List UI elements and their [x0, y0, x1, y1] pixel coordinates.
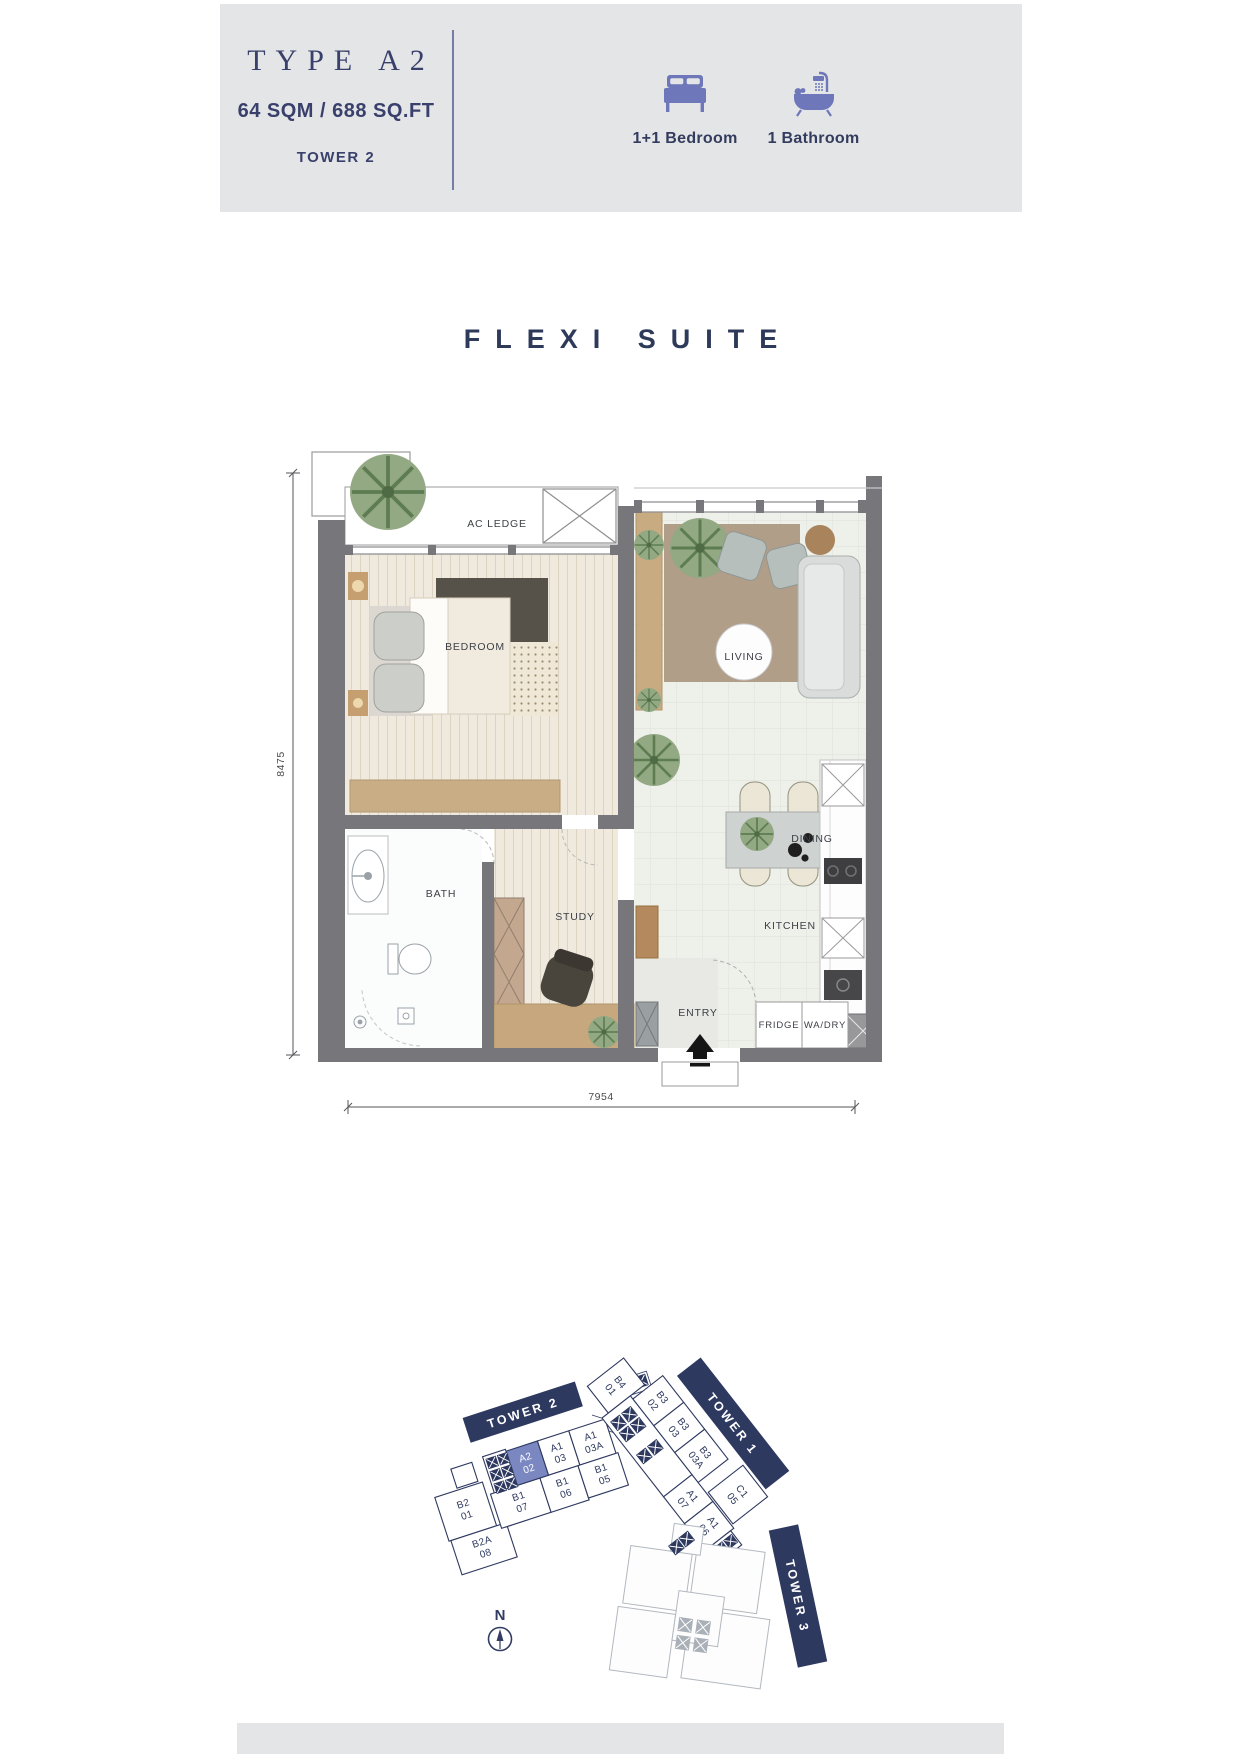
room-label-dining: DINING [791, 833, 833, 845]
footer-bar [237, 1723, 1004, 1754]
north-arrow-icon: N [489, 1607, 512, 1651]
dim-width: 7954 [588, 1091, 613, 1103]
entry-cabinet-wood [636, 906, 658, 958]
room-label-ac-ledge: AC LEDGE [467, 518, 527, 530]
room-label-wadry: WA/DRY [804, 1020, 846, 1031]
room-label-entry: ENTRY [678, 1007, 717, 1019]
bedroom-chair [374, 664, 424, 712]
toilet [388, 944, 398, 974]
oven [824, 970, 862, 1000]
plant-hall [628, 734, 680, 786]
dim-height: 8475 [275, 751, 287, 776]
plant-study [588, 1016, 620, 1048]
north-label: N [495, 1607, 506, 1624]
bedroom-rug-dotted [506, 642, 558, 716]
room-label-bath: BATH [426, 888, 456, 900]
room-label-bedroom: BEDROOM [445, 641, 505, 653]
room-label-study: STUDY [555, 911, 595, 923]
room-label-living: LIVING [724, 651, 763, 663]
plant-ac-ledge [350, 454, 426, 530]
floor-plan-graphic: AC LEDGE BEDROOM LIVING BATH STUDY DININ… [0, 0, 1241, 1754]
tower3-block [609, 1517, 781, 1691]
shower-head [398, 1008, 414, 1024]
bedroom-console [350, 780, 560, 812]
room-label-fridge: FRIDGE [759, 1020, 800, 1031]
pouf [805, 525, 835, 555]
study-wardrobe [494, 898, 524, 1010]
bedroom-chair [374, 612, 424, 660]
room-label-kitchen: KITCHEN [764, 920, 816, 932]
brochure-page: TYPE A2 64 SQM / 688 SQ.FT TOWER 2 [0, 0, 1241, 1754]
key-plan: TOWER 2 A2 02 A1 [414, 1320, 827, 1691]
floor-plan: AC LEDGE BEDROOM LIVING BATH STUDY DININ… [275, 452, 882, 1114]
